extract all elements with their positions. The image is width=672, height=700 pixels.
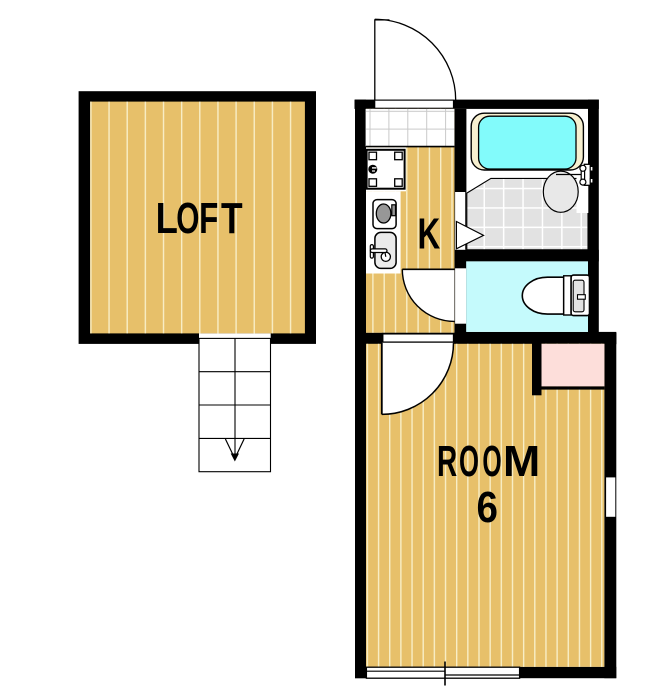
svg-text:L: L — [156, 194, 178, 243]
svg-text:R: R — [437, 437, 457, 486]
svg-text:6: 6 — [476, 483, 497, 532]
svg-text:F: F — [199, 195, 218, 243]
svg-text:O: O — [482, 437, 501, 486]
svg-text:O: O — [176, 193, 199, 242]
svg-text:T: T — [221, 195, 243, 243]
svg-text:O: O — [459, 437, 479, 486]
svg-text:K: K — [418, 210, 441, 258]
svg-text:M: M — [503, 438, 540, 486]
